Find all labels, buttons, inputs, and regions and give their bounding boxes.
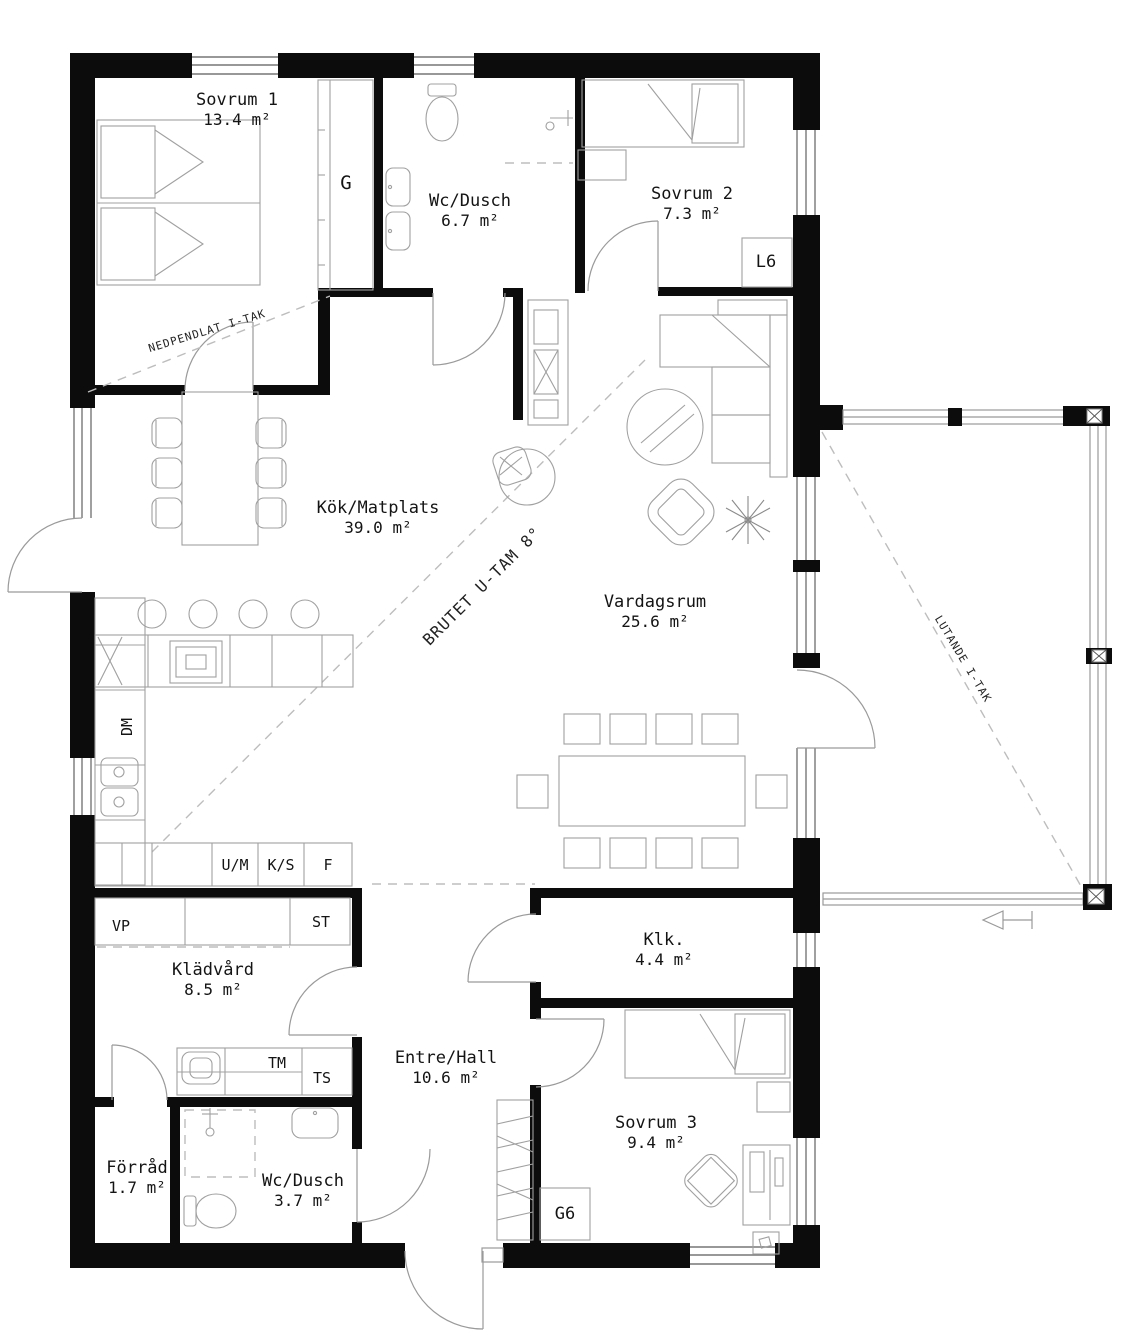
room-area: 1.7 m² bbox=[106, 1178, 167, 1198]
toilet-wc2 bbox=[184, 1194, 236, 1228]
room-area: 10.6 m² bbox=[395, 1068, 497, 1088]
room-area: 9.4 m² bbox=[615, 1133, 697, 1153]
room-name: Förråd bbox=[106, 1158, 167, 1178]
living-dining-table bbox=[517, 714, 787, 868]
room-area: 4.4 m² bbox=[635, 950, 693, 970]
appliance-label-st: ST bbox=[312, 913, 330, 931]
appliance-label-tm: TM bbox=[268, 1054, 286, 1072]
appliance-label-vp: VP bbox=[112, 917, 130, 935]
room-label-kladvard: Klädvård 8.5 m² bbox=[172, 960, 254, 1000]
appliance-label-ks: K/S bbox=[267, 856, 294, 874]
reading-table bbox=[491, 445, 555, 505]
toilet-wc1 bbox=[426, 84, 458, 141]
door-forrad bbox=[112, 1045, 167, 1100]
closet-label-l6: L6 bbox=[756, 252, 776, 272]
window-top-2 bbox=[414, 57, 474, 74]
room-name: Wc/Dusch bbox=[262, 1171, 344, 1191]
room-area: 39.0 m² bbox=[317, 518, 440, 538]
room-area: 13.4 m² bbox=[196, 110, 278, 130]
window-left-2 bbox=[74, 758, 91, 815]
door-klk bbox=[468, 914, 536, 982]
entrance-threshold bbox=[482, 1248, 503, 1262]
room-label-forrad: Förråd 1.7 m² bbox=[106, 1158, 167, 1198]
room-label-klk: Klk. 4.4 m² bbox=[635, 930, 693, 970]
room-name: Vardagsrum bbox=[604, 592, 706, 612]
dash-brutet bbox=[152, 360, 645, 852]
appliance-label-ts: TS bbox=[313, 1069, 331, 1087]
appliance-label-dm: DM bbox=[118, 718, 136, 736]
sofa bbox=[660, 300, 787, 477]
room-name: Klädvård bbox=[172, 960, 254, 980]
door-wc-dusch-ovre bbox=[433, 293, 505, 365]
plant-icon bbox=[726, 496, 770, 544]
dash-nedpendlat bbox=[88, 296, 330, 392]
room-label-wc-dusch-nedre: Wc/Dusch 3.7 m² bbox=[262, 1171, 344, 1211]
door-wc-dusch-nedre bbox=[357, 1149, 430, 1222]
door-left-exterior bbox=[8, 518, 82, 592]
door-sovrum-3 bbox=[536, 1019, 604, 1087]
window-right-3 bbox=[797, 572, 815, 653]
window-bottom bbox=[690, 1247, 775, 1264]
bed-sovrum-2 bbox=[578, 80, 744, 180]
room-name: Klk. bbox=[635, 930, 693, 950]
window-right-6 bbox=[797, 1138, 815, 1225]
coffee-table bbox=[627, 389, 703, 465]
dash-shower-wc2 bbox=[185, 1110, 255, 1177]
window-top-1 bbox=[192, 57, 278, 74]
window-left-1 bbox=[74, 408, 91, 518]
room-name: Sovrum 3 bbox=[615, 1113, 697, 1133]
sink-wc1-2 bbox=[386, 212, 410, 250]
bed-sovrum-3 bbox=[625, 1010, 790, 1112]
room-name: Kök/Matplats bbox=[317, 498, 440, 518]
door-sovrum-2 bbox=[588, 221, 658, 291]
room-label-sovrum-3: Sovrum 3 9.4 m² bbox=[615, 1113, 697, 1153]
room-label-sovrum-1: Sovrum 1 13.4 m² bbox=[196, 90, 278, 130]
room-label-vardagsrum: Vardagsrum 25.6 m² bbox=[604, 592, 706, 632]
appliance-label-um: U/M bbox=[221, 856, 248, 874]
room-label-wc-dusch-ovre: Wc/Dusch 6.7 m² bbox=[429, 191, 511, 231]
window-right-5 bbox=[797, 933, 815, 967]
room-area: 6.7 m² bbox=[429, 211, 511, 231]
floor-plan: Sovrum 1 13.4 m² Wc/Dusch 6.7 m² Sovrum … bbox=[0, 0, 1136, 1344]
sideboard-hall bbox=[528, 300, 568, 425]
closet-label-g6: G6 bbox=[555, 1204, 575, 1224]
room-name: Sovrum 2 bbox=[651, 184, 733, 204]
door-kladvard bbox=[289, 967, 357, 1035]
chair-sovrum-3 bbox=[681, 1150, 742, 1211]
window-right-1 bbox=[797, 130, 815, 215]
door-terrace bbox=[797, 670, 875, 748]
terrace-post-mid-top bbox=[948, 408, 962, 426]
room-name: Entre/Hall bbox=[395, 1048, 497, 1068]
window-right-2 bbox=[797, 477, 815, 560]
room-name: Wc/Dusch bbox=[429, 191, 511, 211]
shower-mixer-wc1 bbox=[546, 110, 573, 130]
room-label-entre-hall: Entre/Hall 10.6 m² bbox=[395, 1048, 497, 1088]
room-area: 3.7 m² bbox=[262, 1191, 344, 1211]
room-area: 25.6 m² bbox=[604, 612, 706, 632]
kitchen-island bbox=[95, 635, 353, 687]
room-label-kok-matplats: Kök/Matplats 39.0 m² bbox=[317, 498, 440, 538]
room-name: Sovrum 1 bbox=[196, 90, 278, 110]
appliance-label-f: F bbox=[323, 856, 332, 874]
shower-mixer-wc2 bbox=[202, 1108, 218, 1136]
closet-label-g: G bbox=[340, 172, 351, 194]
door-entrance bbox=[405, 1251, 483, 1329]
window-right-4 bbox=[797, 748, 815, 838]
entry-closet-hatched bbox=[497, 1100, 533, 1240]
bed-double-sovrum-1 bbox=[97, 120, 260, 285]
bar-stools bbox=[138, 600, 319, 628]
room-area: 8.5 m² bbox=[172, 980, 254, 1000]
kitchen-dining-table bbox=[152, 392, 286, 545]
desk-sovrum-3 bbox=[743, 1145, 790, 1254]
room-label-sovrum-2: Sovrum 2 7.3 m² bbox=[651, 184, 733, 224]
armchair bbox=[641, 472, 720, 551]
north-arrow-icon bbox=[983, 911, 1032, 929]
dash-lutande bbox=[822, 432, 1082, 888]
room-area: 7.3 m² bbox=[651, 204, 733, 224]
sink-wc1-1 bbox=[386, 168, 410, 206]
sink-wc2 bbox=[292, 1108, 338, 1138]
